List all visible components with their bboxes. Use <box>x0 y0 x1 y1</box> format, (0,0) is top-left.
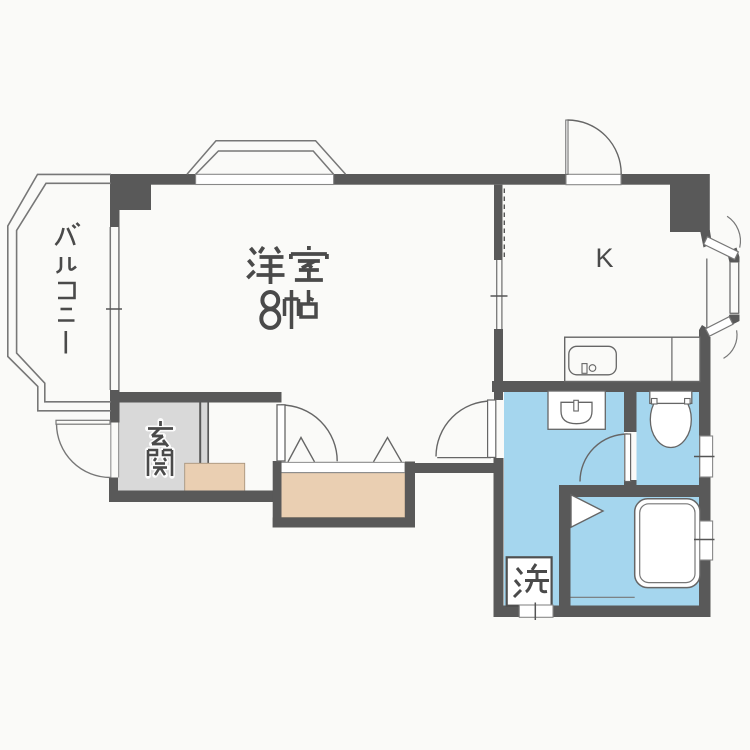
svg-text:K: K <box>595 243 613 273</box>
